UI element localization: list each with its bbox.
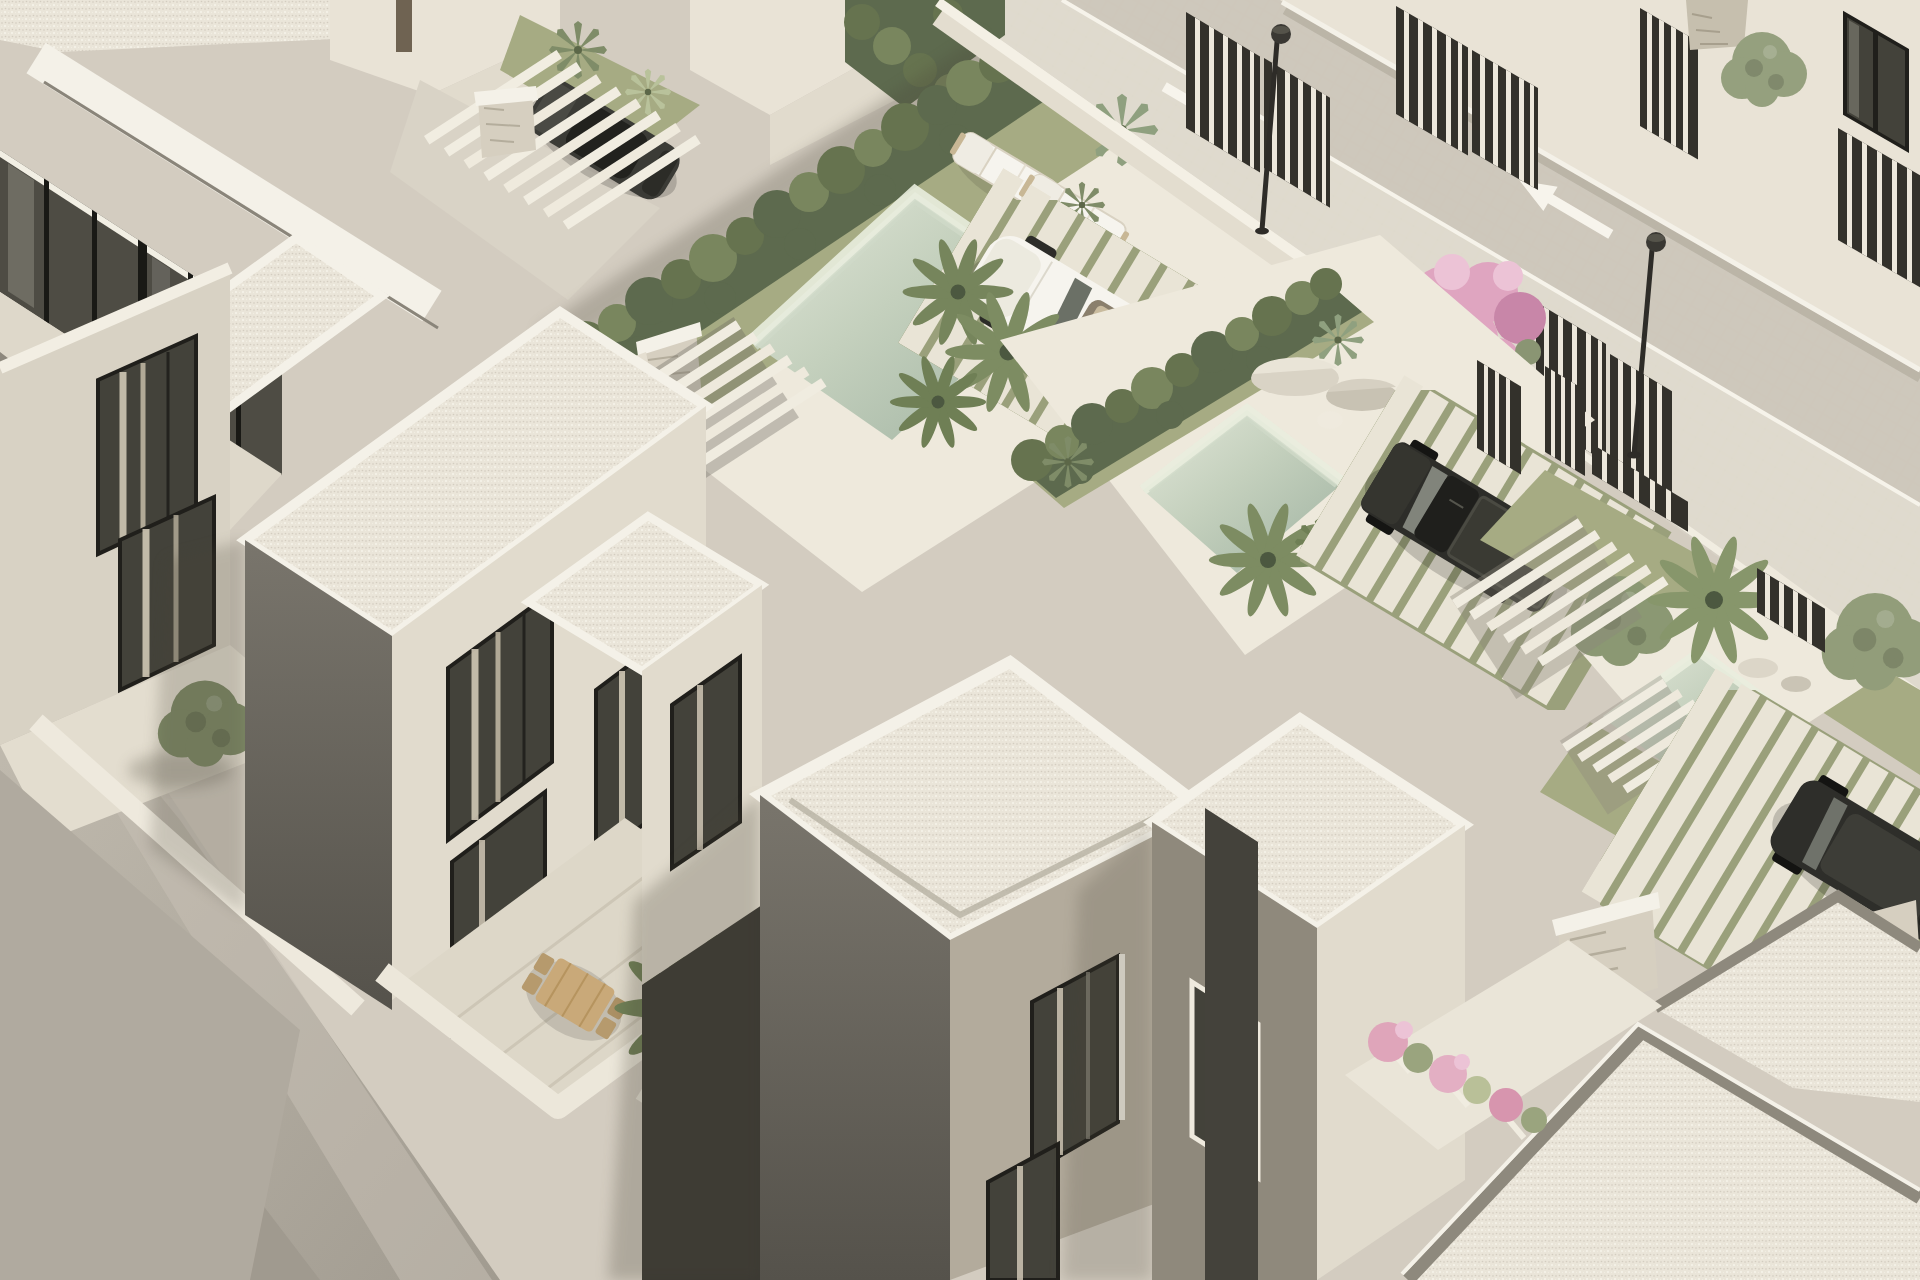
alley-shadow bbox=[1205, 808, 1258, 1280]
tree-trunk bbox=[396, 0, 412, 52]
villa-development-render bbox=[0, 0, 1920, 1280]
agave-plant bbox=[1042, 436, 1094, 488]
decorative-stones bbox=[1738, 658, 1778, 678]
stone-clad-wall bbox=[1686, 0, 1748, 50]
aerial-render-stage bbox=[0, 0, 1920, 1280]
agave-plant bbox=[1312, 314, 1364, 366]
decorative-stones bbox=[1781, 676, 1811, 692]
